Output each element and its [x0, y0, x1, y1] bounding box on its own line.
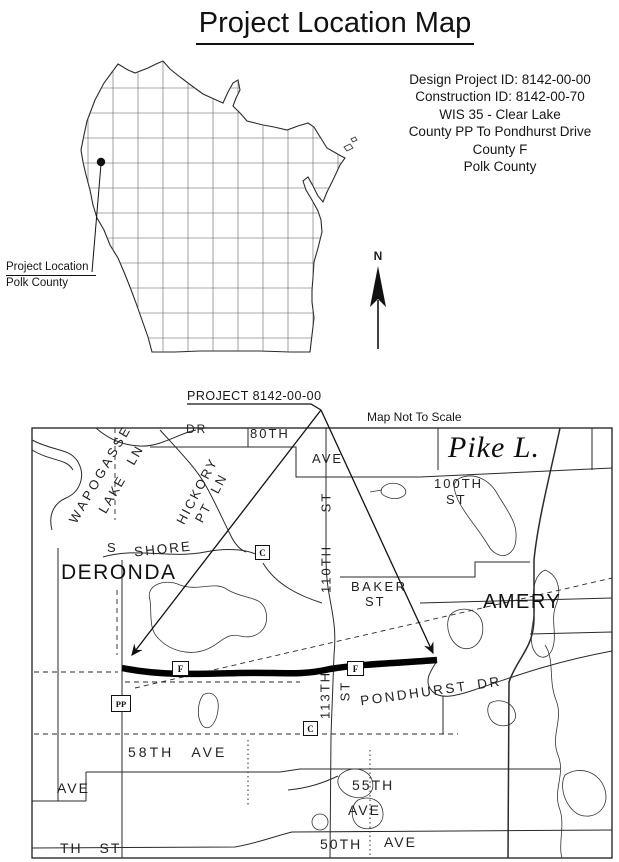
street-110th: 110TH: [319, 545, 334, 593]
street-58th-ave: 58TH AVE: [128, 744, 227, 760]
county-grid: [78, 60, 350, 356]
street-50th: 50TH: [320, 836, 362, 852]
state-map-callout: Project Location Polk County: [6, 260, 96, 291]
road-highway-amery: [508, 428, 560, 858]
small-pond-top: [370, 483, 406, 498]
plan-sheet: Project Location Map Design Project ID: …: [0, 0, 619, 862]
road-58th-ave: [86, 769, 560, 772]
project-info-block: Design Project ID: 8142-00-00 Constructi…: [382, 71, 618, 175]
door-islands: [344, 137, 357, 151]
street-55th: 55TH: [352, 777, 394, 793]
marker-county-c-north: C: [255, 545, 270, 560]
street-113th: 113TH: [318, 671, 333, 719]
street-shore-s: S: [107, 540, 118, 555]
north-label: N: [368, 249, 388, 263]
street-baker-st: ST: [365, 594, 386, 609]
marker-county-pp: PP: [111, 695, 131, 712]
roads-left: [32, 548, 86, 801]
lake-bottom-right: [563, 770, 606, 816]
project-callout-label: PROJECT 8142-00-00: [187, 389, 322, 403]
project-callout-lines: [132, 404, 433, 655]
marker-county-f-west: F: [172, 661, 189, 676]
north-arrow-icon: [370, 266, 386, 349]
street-113th-st: ST: [338, 681, 353, 702]
pond-below-project-road: [198, 693, 218, 728]
road-baker-st: [340, 562, 530, 577]
marker-county-f-east: F: [347, 661, 364, 676]
wisconsin-state-map: [78, 60, 357, 356]
info-limits: County PP To Pondhurst Drive: [382, 123, 618, 140]
project-road-bold: [122, 660, 437, 674]
street-50th-ave: AVE: [384, 834, 417, 850]
info-county: Polk County: [382, 158, 618, 175]
callout-title: Project Location: [6, 260, 96, 276]
street-th-st: TH ST: [60, 840, 121, 856]
street-100th-st: ST: [446, 492, 467, 507]
pond-pondhurst: [488, 701, 516, 726]
street-80th: 80TH: [250, 426, 290, 441]
town-amery: AMERY: [483, 591, 561, 614]
street-baker: BAKER: [351, 579, 408, 594]
info-county-road: County F: [382, 141, 618, 158]
callout-subtitle: Polk County: [6, 277, 68, 289]
info-highway: WIS 35 - Clear Lake: [382, 106, 618, 123]
street-55th-ave: AVE: [348, 802, 381, 818]
pond-50th: [312, 814, 328, 830]
street-80th-ave: AVE: [312, 451, 343, 466]
street-dr: DR: [186, 422, 207, 436]
info-construction-id: Construction ID: 8142-00-70: [382, 88, 618, 105]
scale-note: Map Not To Scale: [367, 410, 462, 424]
lake-wapogasse: [149, 582, 266, 652]
town-deronda: DERONDA: [61, 561, 177, 585]
info-design-project-id: Design Project ID: 8142-00-00: [382, 71, 618, 88]
river-right-edge: [545, 645, 562, 858]
callout-leader-line: [92, 164, 101, 272]
street-ave-left: AVE: [57, 780, 90, 796]
callout-underline: [187, 404, 321, 410]
street-110th-st: ST: [319, 492, 334, 513]
marker-county-c-south: C: [303, 721, 318, 736]
callout-right-line: [321, 410, 433, 653]
street-100th: 100TH: [434, 476, 483, 491]
pike-lake-label: Pike L.: [448, 431, 540, 465]
page-title: Project Location Map: [85, 7, 585, 45]
